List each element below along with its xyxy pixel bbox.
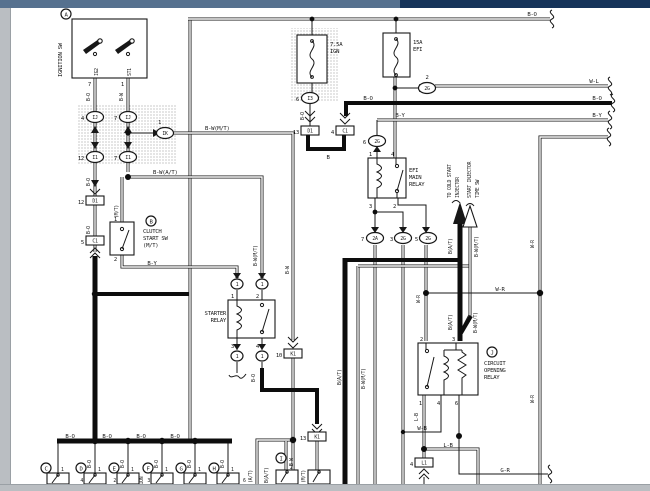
wire-label-wr: W-R	[530, 395, 536, 403]
svg-text:2A: 2A	[372, 236, 378, 242]
cor-pin-1: 1	[419, 401, 422, 407]
connector-5-2g-num: 5	[415, 237, 418, 243]
fuse-efi-rating: 15A	[413, 40, 423, 46]
wire-label-bo: B-O	[65, 434, 75, 440]
wire-label-bo: B-O	[120, 460, 126, 468]
connector-2-2g-num: 2	[425, 75, 428, 81]
wiring-diagram: A IGNITION SW IG2 ST1 7 1 B-O B-W 7.5A I…	[0, 0, 650, 491]
cor-pin-6: 6	[455, 401, 458, 407]
svg-text:IJ: IJ	[125, 115, 131, 121]
wire-label-bo: B-O	[86, 178, 92, 186]
wire-label-bo: B-O	[102, 434, 112, 440]
ignition-switch-label: IGNITION SW	[58, 42, 64, 77]
svg-text:1: 1	[165, 467, 168, 473]
connector-7-2a-num: 7	[361, 237, 364, 243]
efi-relay-label-1: EFI	[409, 168, 418, 174]
wire-label-bat: B(A/T)	[264, 467, 270, 483]
connector-6-2g-num: 6	[363, 140, 366, 146]
wire-label-lb: L-B	[414, 413, 420, 421]
wire-label-at: (A/T)	[248, 470, 254, 483]
svg-text:2G: 2G	[374, 139, 380, 145]
wire-label-bo-right: B-O	[592, 96, 602, 102]
plug-13-d1-num: 13	[293, 130, 299, 136]
svg-text:1: 1	[231, 467, 234, 473]
svg-text:L1: L1	[421, 461, 427, 467]
wire-label-bo: B-O	[87, 460, 93, 468]
wire-label-bo: B-O	[220, 460, 226, 468]
pin-st1: 1	[121, 82, 124, 88]
cor-label-1: CIRCUIT	[484, 361, 506, 367]
svg-text:K1: K1	[290, 352, 296, 358]
wire-label-lb: L-B	[443, 443, 453, 449]
svg-text:1: 1	[236, 354, 239, 360]
connector-7-i1-num: 7	[114, 156, 117, 162]
wire-label-bwmt: B-W(M/T)	[474, 236, 480, 257]
starter-relay-label-2: RELAY	[211, 318, 227, 324]
cor-pin-2: 2	[420, 337, 423, 343]
svg-text:IJ: IJ	[92, 115, 98, 121]
svg-text:H: H	[212, 466, 215, 472]
wire-label-bo: B-O	[154, 460, 160, 468]
wire-label-bo: B-O	[363, 96, 373, 102]
cor-label-3: RELAY	[484, 375, 500, 381]
svg-text:2G: 2G	[424, 86, 430, 92]
svg-text:D1: D1	[92, 199, 98, 205]
plug-12-d1-num: 12	[78, 200, 84, 206]
starter-relay-label-1: STARTER	[205, 311, 227, 317]
efi-pin-2: 2	[393, 204, 396, 210]
wire-label-gr: G-R	[500, 468, 510, 474]
wire-label-bw: B-W	[285, 266, 291, 274]
plug-10-k1-num: 10	[276, 353, 282, 359]
svg-text:K1: K1	[314, 435, 320, 441]
svg-text:I: I	[279, 456, 282, 462]
wire-label-bw: B-W	[289, 458, 295, 466]
titlebar-right-segment	[400, 0, 650, 8]
connector-1-ik-num: 1	[158, 120, 161, 126]
wire-label-bw: B-W	[119, 93, 125, 101]
wire-label-bo: B-O	[300, 112, 306, 120]
callout-j: J	[490, 350, 493, 356]
starter-pin-1: 1	[231, 294, 234, 300]
svg-text:1: 1	[236, 282, 239, 288]
wire-label-bo: B-O	[251, 374, 257, 382]
svg-text:C: C	[44, 466, 47, 472]
wire-label-by: B-Y	[395, 113, 405, 119]
svg-text:1: 1	[261, 282, 264, 288]
wire-label-mt: (M/T)	[301, 470, 307, 483]
svg-text:I1: I1	[125, 155, 131, 161]
wire-label-wr: W-R	[530, 240, 536, 248]
dest-time-sw: TIME SW	[475, 179, 481, 198]
fuse-ign-rating: 7.5A	[330, 42, 343, 48]
starter-pin-2: 2	[256, 294, 259, 300]
clutch-pin-2: 2	[114, 257, 117, 263]
wire-label-bwmt: B-W(M/T)	[473, 312, 479, 333]
window: A IGNITION SW IG2 ST1 7 1 B-O B-W 7.5A I…	[0, 0, 650, 491]
wire-label-bat: B(A/T)	[337, 369, 343, 385]
window-frame-bottom	[0, 484, 650, 491]
wire-label-bo: B-O	[136, 434, 146, 440]
connector-6-i3-num: 6	[296, 97, 299, 103]
fuse-efi-name: EFI	[413, 47, 422, 53]
svg-text:C1: C1	[92, 239, 98, 245]
efi-pin-1: 1	[369, 152, 372, 158]
bottom-box-k1: (M/T)	[301, 470, 330, 484]
pin-ig2: 7	[88, 82, 91, 88]
starter-pin-3: 3	[231, 344, 234, 350]
efi-relay-label-2: MAIN	[409, 175, 421, 181]
svg-text:1: 1	[131, 467, 134, 473]
wire-label-bo: B-O	[86, 93, 92, 101]
svg-text:C1: C1	[342, 129, 348, 135]
wire-label-mt: (M/T)	[114, 205, 120, 218]
wire-label-bwat: B-W(A/T)	[153, 170, 178, 176]
wire-label-bo: B-O	[86, 226, 92, 234]
window-titlebar	[0, 0, 650, 8]
fuse-ign-name: IGN	[330, 49, 339, 55]
wire-label-bat: B(A/T)	[448, 314, 454, 330]
wire-label-bwmt: B-W(M/T)	[253, 245, 259, 266]
wire-label-wr: W-R	[416, 295, 422, 303]
connector-7-ij-num: 7	[114, 116, 117, 122]
wire-label-bat: B(A/T)	[448, 238, 454, 254]
cor-label-2: OPENING	[484, 368, 506, 374]
wire-label-by: B-Y	[147, 261, 157, 267]
svg-text:1: 1	[261, 354, 264, 360]
wire-label-by-right: B-Y	[592, 113, 602, 119]
window-frame-left	[0, 8, 11, 491]
wire-label-bo-top: B-O	[527, 12, 537, 18]
dest-start-injector: START INJECTOR	[467, 161, 473, 198]
svg-text:D1: D1	[307, 129, 313, 135]
dest-to-cold-start: TO COLD START	[447, 164, 453, 198]
svg-text:1: 1	[98, 467, 101, 473]
wire-label-wl: W-L	[589, 79, 599, 85]
clutch-label-2: START SW	[143, 236, 168, 242]
wire-label-bwmt: B-W(M/T)	[205, 126, 230, 132]
dest-injector: INJECTOR	[455, 177, 461, 198]
terminal-st1: ST1	[127, 68, 133, 76]
svg-text:1: 1	[198, 467, 201, 473]
wire-label-wr: W-R	[495, 287, 505, 293]
connector-3-2g-num: 3	[390, 237, 393, 243]
clutch-label-3: (M/T)	[143, 243, 158, 249]
cor-pin-3: 3	[452, 337, 455, 343]
svg-text:IK: IK	[162, 131, 168, 137]
clutch-label-1: CLUTCH	[143, 229, 161, 235]
svg-text:1: 1	[61, 467, 64, 473]
svg-text:I1: I1	[92, 155, 98, 161]
efi-relay-label-3: RELAY	[409, 182, 425, 188]
terminal-ig2: IG2	[94, 68, 100, 76]
efi-pin-3: 3	[369, 204, 372, 210]
plug-13-k1-num: 13	[300, 436, 306, 442]
wire-label-bwmt: B-W(M/T)	[361, 368, 367, 389]
svg-text:2G: 2G	[425, 236, 431, 242]
svg-text:I3: I3	[307, 96, 313, 102]
connector-12-i1-num: 12	[78, 156, 84, 162]
plug-5-c1-num: 5	[81, 240, 84, 246]
wire-label-bo: B-O	[170, 434, 180, 440]
svg-text:2G: 2G	[400, 236, 406, 242]
wire-label-bo: B-O	[187, 460, 193, 468]
wire-label-wb: W-B	[417, 426, 427, 432]
